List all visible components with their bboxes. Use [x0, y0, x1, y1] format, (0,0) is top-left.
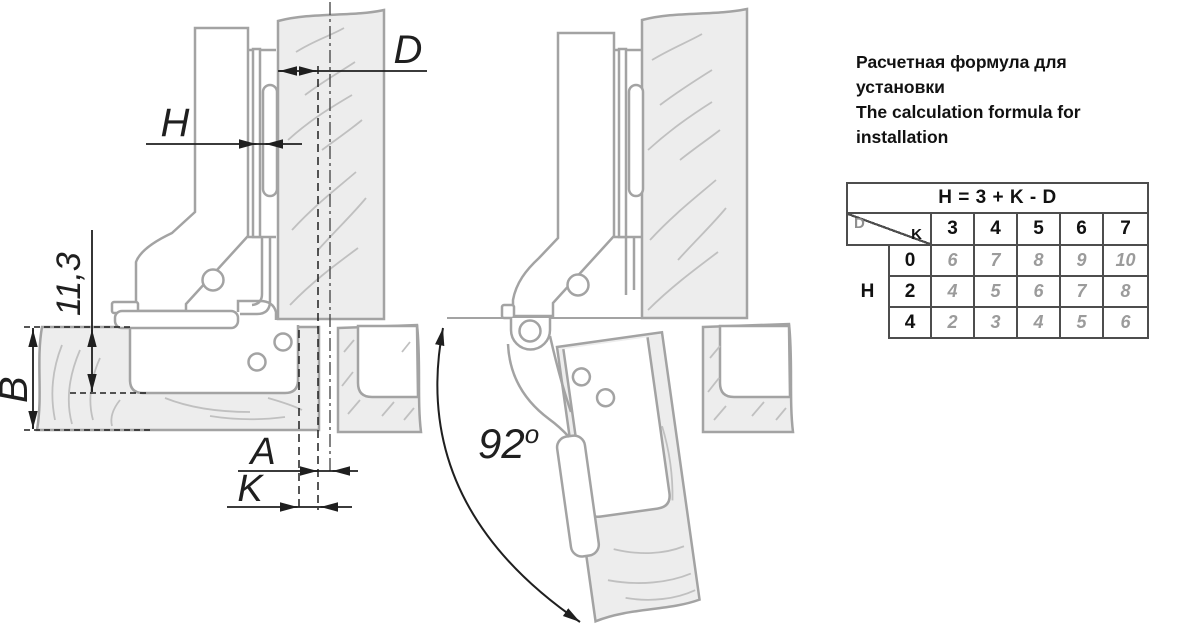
side-panel-section: [278, 10, 384, 319]
hinge-installation-sheet: D H 11,3 B A K: [0, 0, 1200, 629]
table-value: 5: [974, 276, 1017, 307]
table-value: 2: [931, 307, 974, 338]
table-value: 6: [931, 245, 974, 276]
lower-link: [626, 238, 634, 295]
dowel-hole: [596, 388, 615, 407]
formula-cell: H = 3 + K - D: [847, 183, 1148, 213]
hinge-closed: [112, 28, 277, 328]
table-row-formula: H = 3 + K - D: [847, 183, 1148, 213]
hinge-technical-drawing: D H 11,3 B A K: [0, 0, 840, 629]
panel-title: Расчетная формула для установки The calc…: [856, 50, 1186, 150]
title-line-ru-1: Расчетная формула для: [856, 50, 1186, 75]
table-value: 3: [974, 307, 1017, 338]
col-header: 3: [931, 213, 974, 245]
table-value: 4: [931, 276, 974, 307]
arm-screw: [568, 275, 589, 296]
door-panel-section: [37, 325, 319, 430]
table-row: H 0 6 7 8 9 10: [847, 245, 1148, 276]
mount-strip: [619, 49, 626, 237]
open-position-diagram: 92o: [437, 9, 793, 623]
closed-position-diagram: D H 11,3 B A K: [0, 2, 427, 510]
row-header: 2: [889, 276, 931, 307]
hinge-arm: [136, 28, 248, 311]
pivot-pin: [520, 321, 541, 342]
arm-screw: [203, 270, 224, 291]
col-header: 6: [1060, 213, 1103, 245]
table-value: 10: [1103, 245, 1148, 276]
dimension-label-d: D: [394, 28, 423, 72]
title-line-ru-2: установки: [856, 75, 1186, 100]
mount-strip: [253, 49, 260, 237]
table-value: 6: [1103, 307, 1148, 338]
table-value: 9: [1060, 245, 1103, 276]
dimension-label-a: A: [248, 431, 275, 473]
diag-row-var: D: [854, 215, 865, 232]
row-header: 0: [889, 245, 931, 276]
table-row: 4 2 3 4 5 6: [847, 307, 1148, 338]
cabinet-wall-section: [338, 325, 421, 432]
col-header: 4: [974, 213, 1017, 245]
table-value: 6: [1017, 276, 1060, 307]
title-line-en-2: installation: [856, 125, 1186, 150]
dowel-hole: [249, 354, 266, 371]
table-value: 5: [1060, 307, 1103, 338]
table-row-headers: D K 3 4 5 6 7: [847, 213, 1148, 245]
row-axis-label: H: [847, 245, 889, 338]
side-panel-section: [642, 9, 747, 318]
calculation-table: H = 3 + K - D D K 3 4 5 6 7 H 0 6 7 8 9 …: [846, 182, 1149, 339]
table-value: 8: [1103, 276, 1148, 307]
dimension-label-b: B: [0, 376, 36, 403]
open-door-panel: [543, 332, 700, 623]
col-header: 7: [1103, 213, 1148, 245]
table-value: 8: [1017, 245, 1060, 276]
table-value: 7: [1060, 276, 1103, 307]
formula-panel: Расчетная формула для установки The calc…: [856, 50, 1186, 150]
cabinet-wall-section: [703, 324, 793, 432]
diag-col-var: K: [911, 226, 922, 243]
dimension-label-depth: 11,3: [50, 252, 88, 316]
dimension-label-h: H: [161, 101, 190, 145]
table-value: 7: [974, 245, 1017, 276]
hinge-foot: [502, 305, 514, 318]
dowel-hole: [572, 367, 591, 386]
dowel-hole: [275, 334, 292, 351]
table-value: 4: [1017, 307, 1060, 338]
col-header: 5: [1017, 213, 1060, 245]
hinge-arm: [513, 33, 614, 316]
title-line-en-1: The calculation formula for: [856, 100, 1186, 125]
mounting-plate: [263, 85, 277, 196]
dimension-label-k: K: [237, 468, 264, 510]
cup-flange: [115, 311, 238, 328]
diagonal-header-cell: D K: [847, 213, 931, 245]
row-header: 4: [889, 307, 931, 338]
table-row: 2 4 5 6 7 8: [847, 276, 1148, 307]
cup-bore-cavity: [130, 325, 298, 393]
opening-angle-label: 92o: [478, 419, 539, 467]
mounting-plate: [629, 85, 643, 196]
